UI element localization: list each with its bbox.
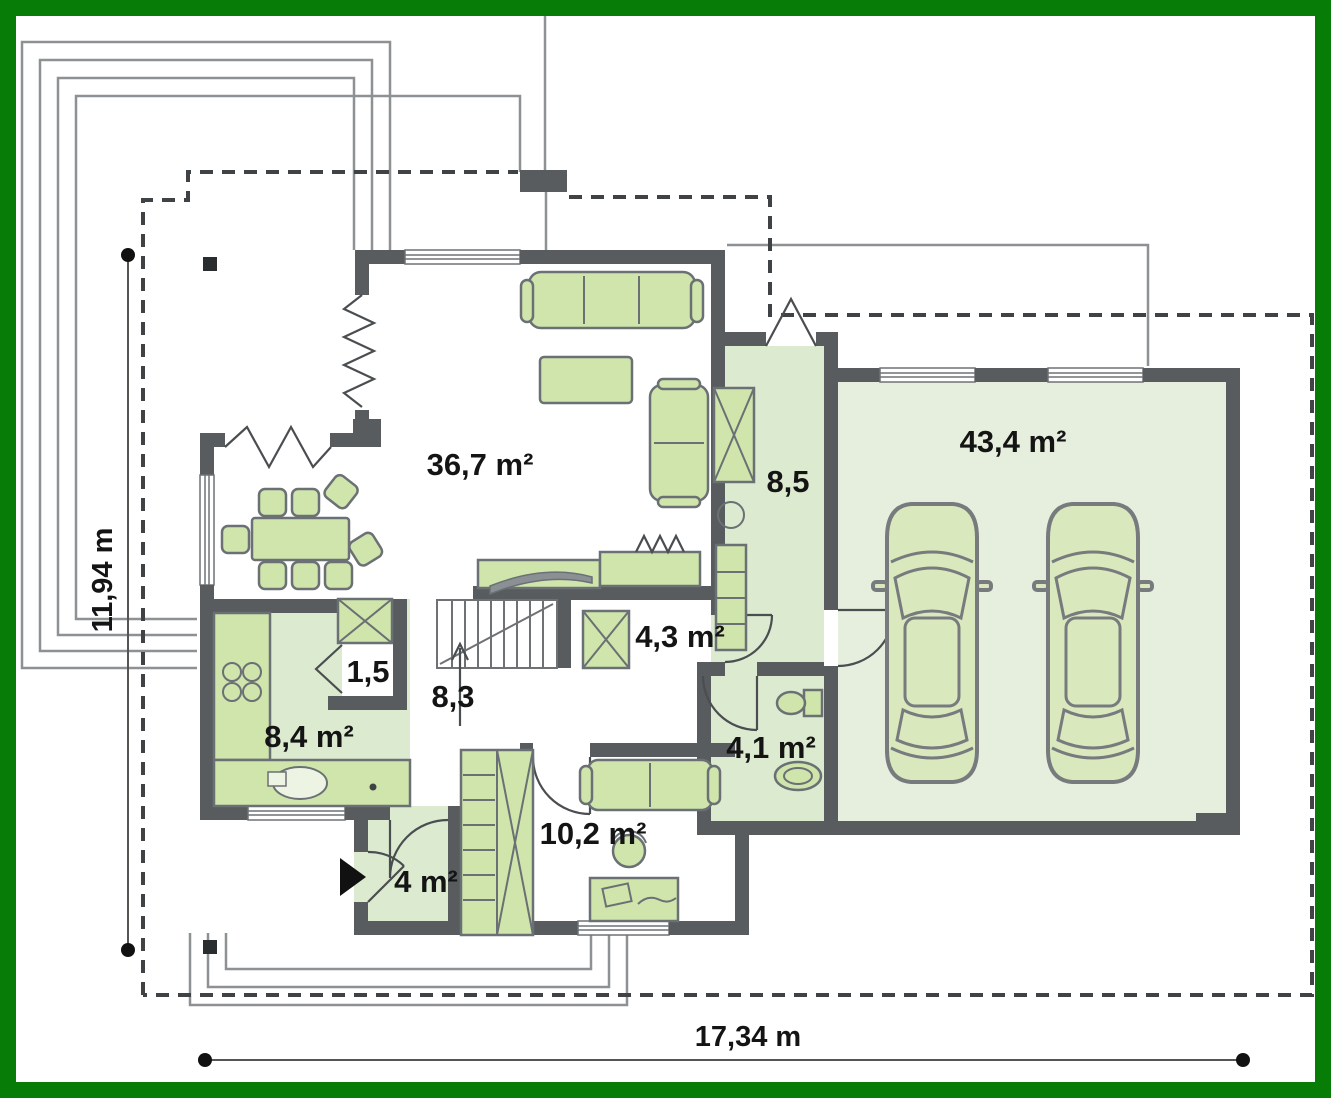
floor-plan-image: 36,7 m² 8,5 43,4 m² 4,3 m² 1,5 8,3 8,4 m…: [0, 0, 1331, 1098]
cabinet: [338, 599, 392, 643]
sofa: [650, 379, 708, 507]
chimney: [520, 170, 567, 192]
tv-cabinet: [478, 560, 600, 594]
room-label-office: 10,2 m²: [540, 816, 647, 851]
dining-table: [252, 518, 349, 560]
toilet-icon: [777, 690, 822, 716]
chair: [259, 489, 286, 516]
dimension-dot: [121, 248, 135, 262]
car: [873, 504, 991, 782]
chair: [292, 562, 319, 589]
desk: [590, 878, 678, 921]
room-label-bathroom: 4,1 m²: [726, 730, 816, 765]
room-label-hall: 8,3: [431, 679, 474, 714]
room-label-pantry: 1,5: [346, 654, 389, 689]
dimension-dot: [1236, 1053, 1250, 1067]
floor-plan-svg: 36,7 m² 8,5 43,4 m² 4,3 m² 1,5 8,3 8,4 m…: [0, 0, 1331, 1098]
dimension-label-width: 17,34 m: [695, 1021, 801, 1053]
chair: [222, 526, 249, 553]
room-label-kitchen: 8,4 m²: [264, 719, 354, 754]
coffee-table: [540, 357, 632, 403]
room-label-garage: 43,4 m²: [960, 424, 1067, 459]
room-label-entry: 4 m²: [394, 864, 458, 899]
room-label-wardrobe: 4,3 m²: [635, 619, 725, 654]
sofa: [580, 760, 720, 810]
car: [1034, 504, 1152, 782]
washbasin-icon: [775, 762, 821, 790]
pillar-marker: [203, 257, 217, 271]
chair: [325, 562, 352, 589]
built-in-wardrobe: [461, 750, 533, 935]
chair: [259, 562, 286, 589]
dimension-label-height: 11,94 m: [87, 528, 119, 633]
dimension-dot: [121, 943, 135, 957]
pillar-marker: [203, 940, 217, 954]
wardrobe-cabinet: [583, 611, 629, 668]
dimension-dot: [198, 1053, 212, 1067]
wardrobe-cabinet: [714, 388, 754, 482]
chair: [292, 489, 319, 516]
room-label-corridor: 8,5: [766, 464, 809, 499]
room-label-living: 36,7 m²: [427, 447, 534, 482]
sofa: [521, 272, 703, 328]
